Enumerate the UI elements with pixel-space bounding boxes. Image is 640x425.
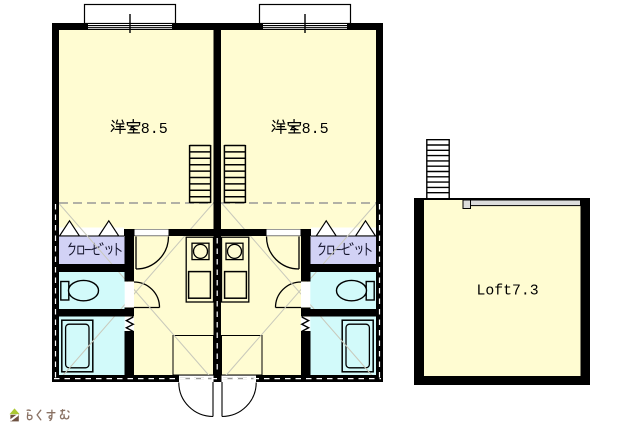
svg-text:8.5: 8.5 [302,121,329,138]
svg-text:8.5: 8.5 [141,121,168,138]
svg-text:Loft7.3: Loft7.3 [477,284,539,300]
